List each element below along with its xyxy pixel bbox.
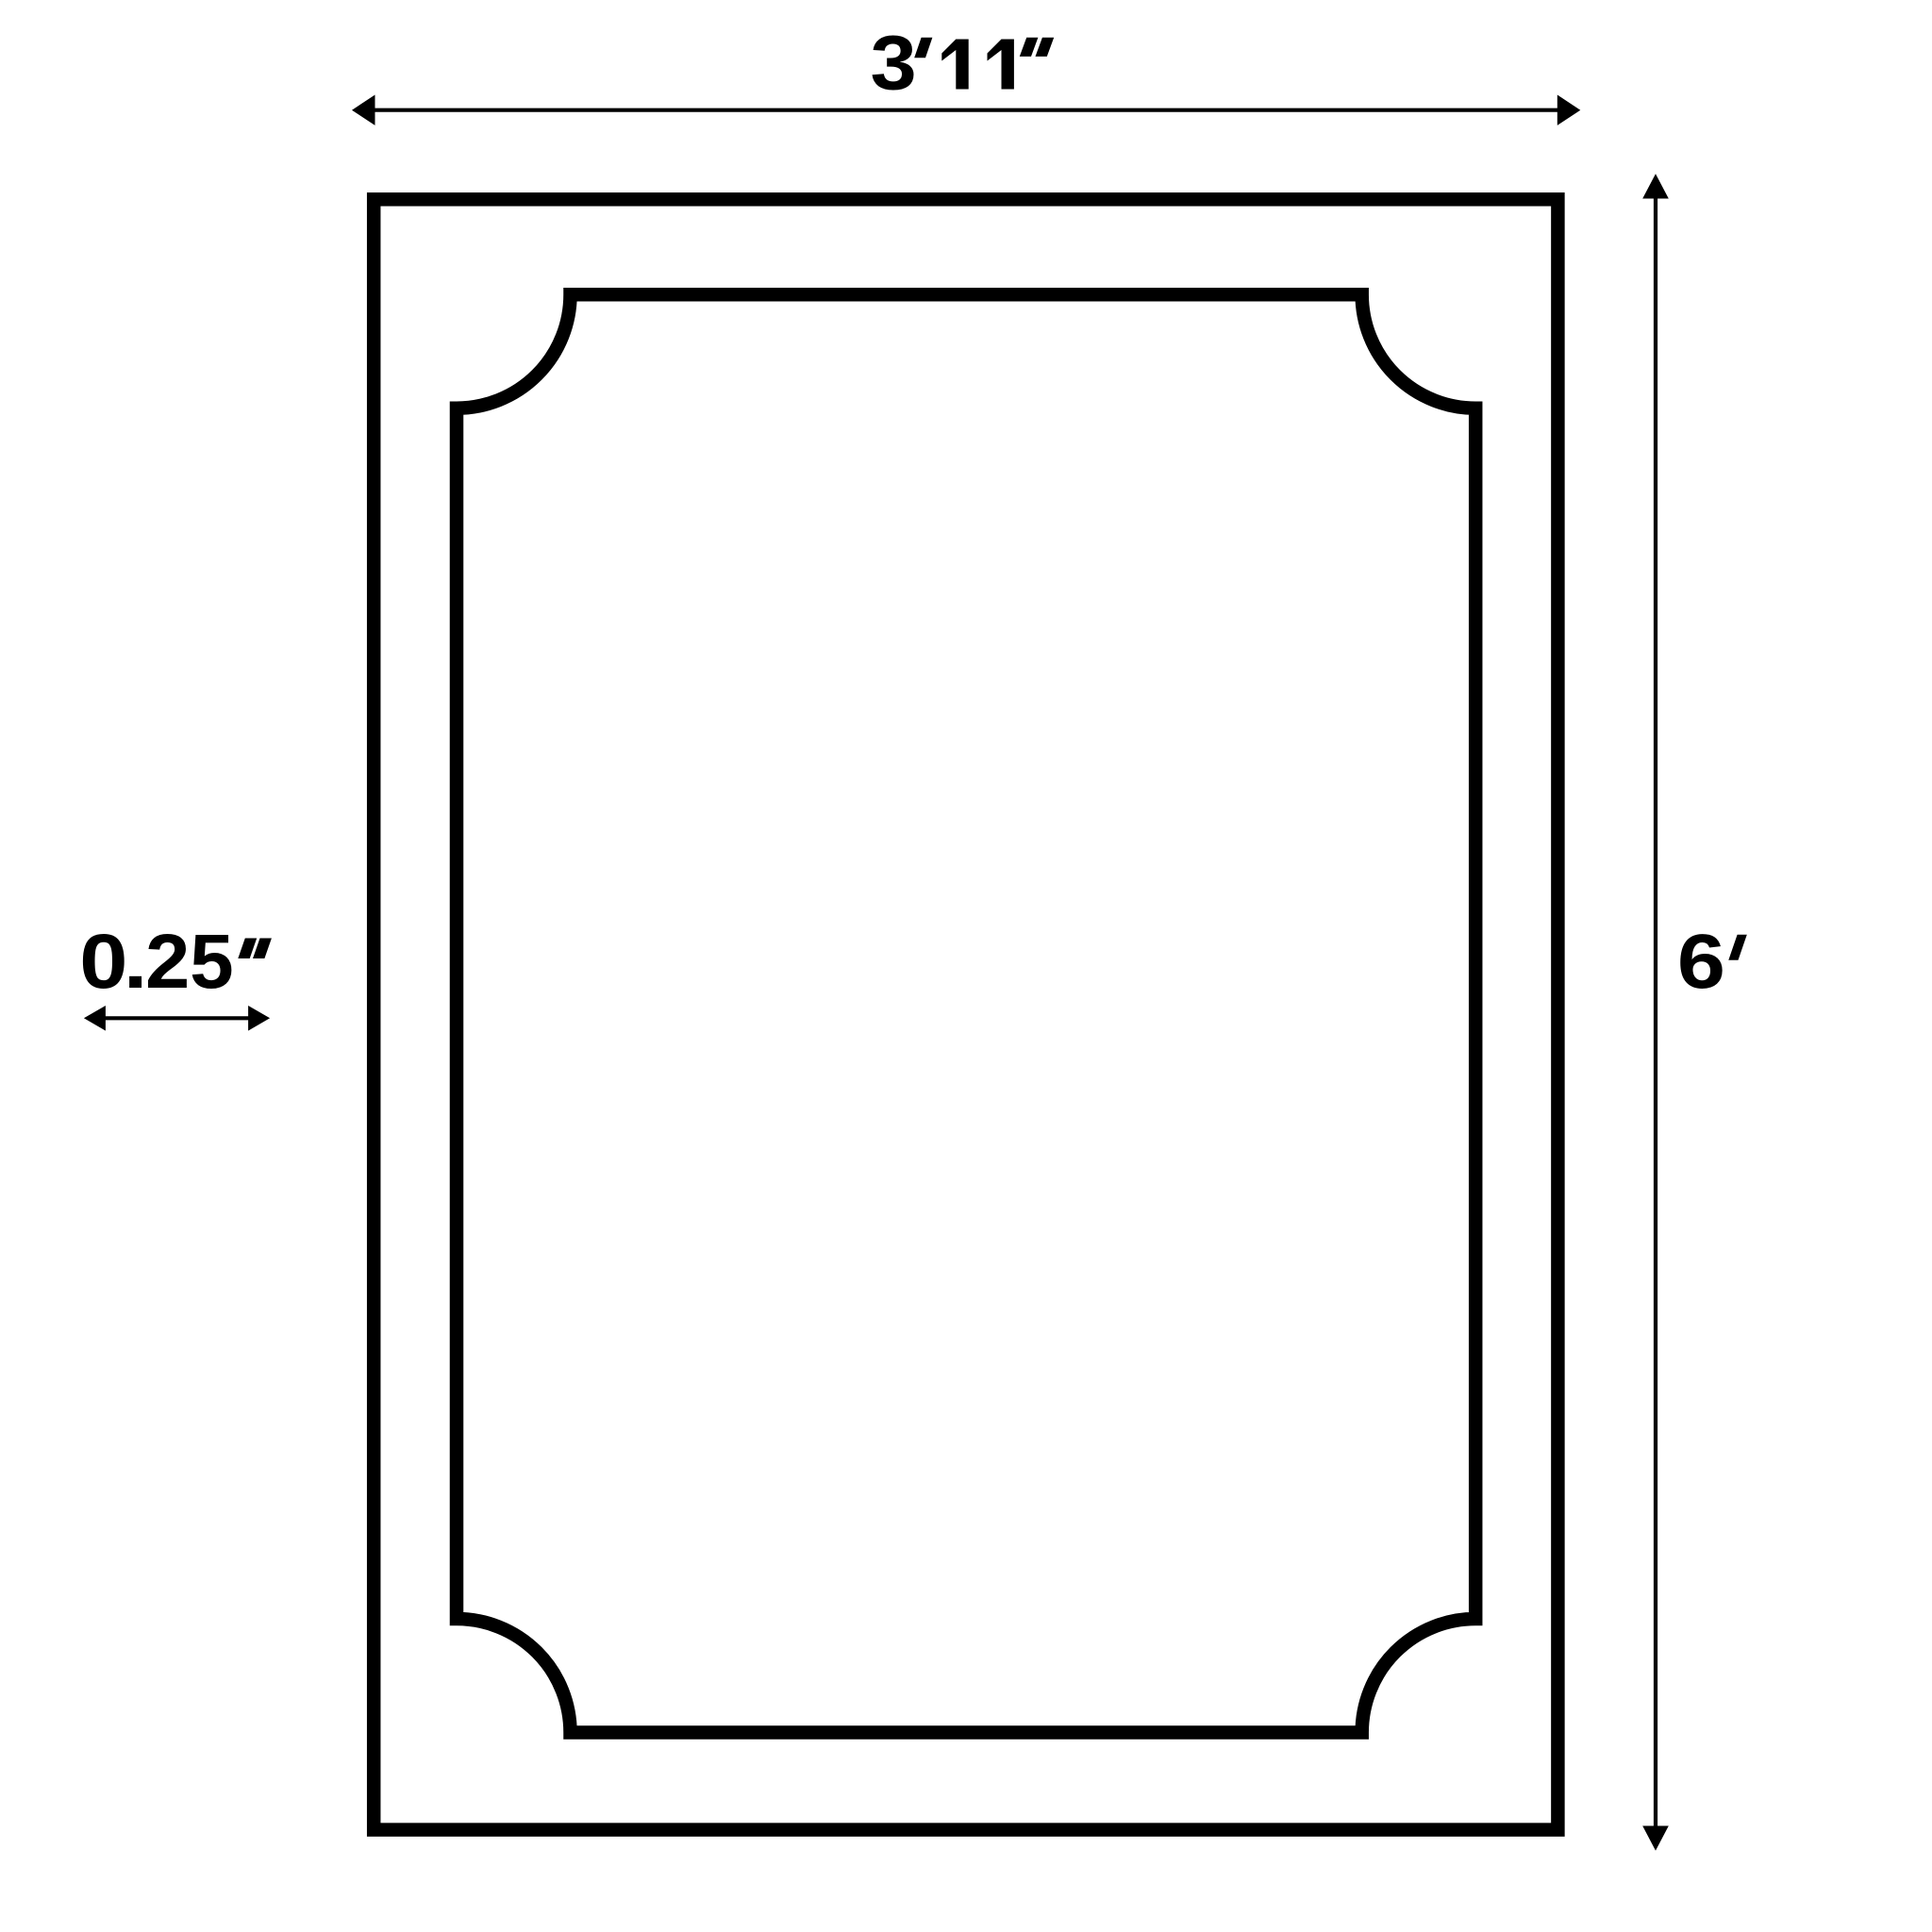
svg-text:2: 2 [145,919,190,1005]
svg-text:6: 6 [1677,919,1725,1005]
svg-text:5: 5 [190,919,234,1005]
svg-text:.: . [124,919,148,1005]
svg-text:0: 0 [79,919,127,1005]
svg-text:3: 3 [871,21,917,107]
